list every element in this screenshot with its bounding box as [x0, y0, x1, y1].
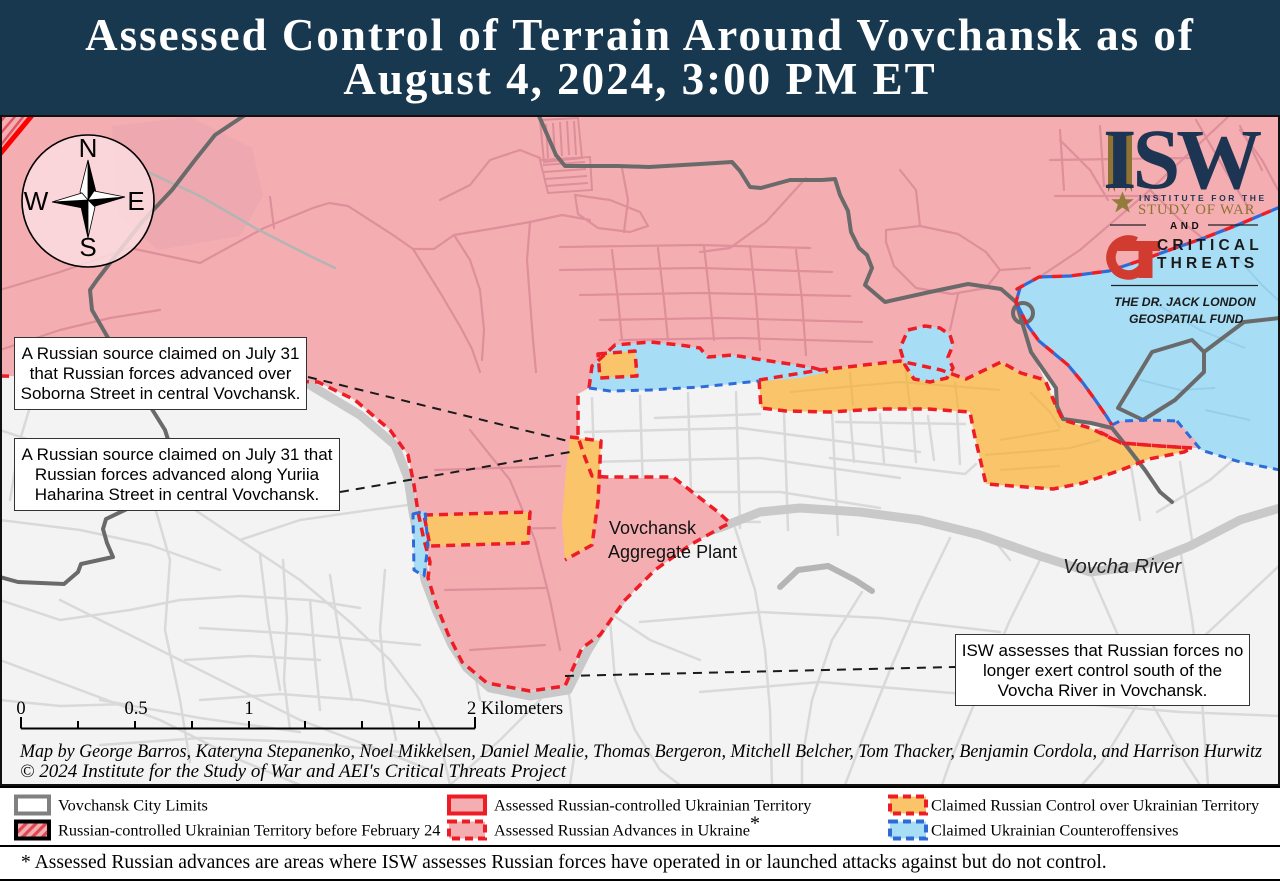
svg-text:Claimed Russian Control over U: Claimed Russian Control over Ukrainian T… — [931, 796, 1260, 815]
svg-text:STUDY OF WAR: STUDY OF WAR — [1138, 202, 1255, 218]
svg-text:S: S — [79, 232, 96, 262]
svg-text:AND: AND — [1170, 221, 1202, 232]
svg-text:Vovcha River: Vovcha River — [1063, 556, 1183, 578]
svg-text:THE DR. JACK LONDON: THE DR. JACK LONDON — [1114, 295, 1257, 309]
svg-text:Aggregate Plant: Aggregate Plant — [608, 542, 737, 562]
svg-text:CRITICAL: CRITICAL — [1157, 237, 1263, 254]
svg-text:Vovchansk: Vovchansk — [609, 518, 697, 538]
svg-text:0.5: 0.5 — [124, 699, 147, 719]
svg-text:Russian-controlled Ukrainian T: Russian-controlled Ukrainian Territory b… — [58, 821, 440, 840]
svg-text:GEOSPATIAL FUND: GEOSPATIAL FUND — [1129, 312, 1244, 326]
svg-text:Vovchansk City Limits: Vovchansk City Limits — [58, 796, 208, 815]
svg-text:Assessed Russian-controlled Uk: Assessed Russian-controlled Ukrainian Te… — [494, 796, 812, 815]
svg-text:0: 0 — [16, 699, 25, 719]
svg-text:Claimed Ukrainian Counteroffen: Claimed Ukrainian Counteroffensives — [931, 821, 1178, 840]
svg-text:2 Kilometers: 2 Kilometers — [467, 699, 563, 719]
svg-text:1: 1 — [244, 699, 253, 719]
svg-text:© 2024 Institute for the Study: © 2024 Institute for the Study of War an… — [20, 761, 567, 782]
svg-text:N: N — [79, 133, 98, 163]
svg-text:Assessed Russian Advances in U: Assessed Russian Advances in Ukraine* — [494, 813, 760, 840]
svg-text:THREATS: THREATS — [1157, 255, 1258, 272]
svg-text:E: E — [127, 186, 144, 216]
svg-text:Map by George Barros, Kateryna: Map by George Barros, Kateryna Stepanenk… — [19, 741, 1263, 762]
svg-text:W: W — [24, 186, 49, 216]
